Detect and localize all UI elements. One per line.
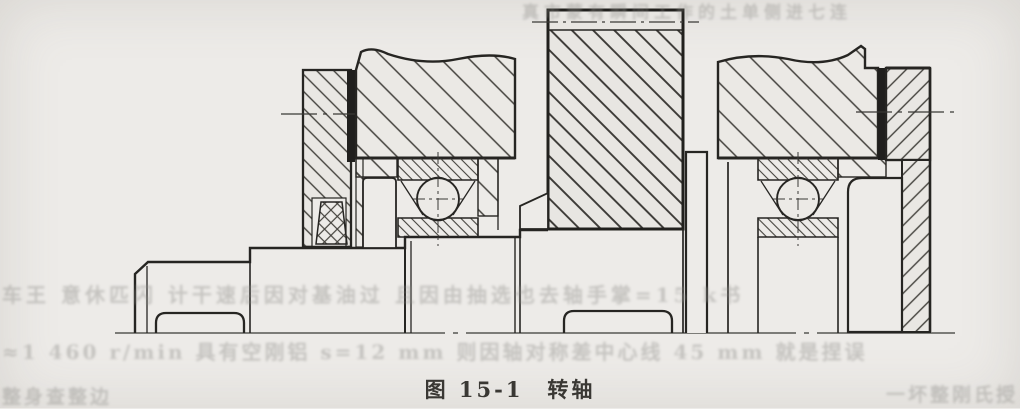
shaft-assembly-section-drawing: [0, 0, 1020, 408]
shaft-end-collar: [848, 178, 902, 332]
gear: [532, 10, 699, 333]
scanned-page: 真市蒙有瞬间工作的土单侧进七连 车王 意休匹闪 计干速后因对基油过 且因由抽选也…: [0, 0, 1020, 408]
keyway-center: [564, 311, 672, 333]
spacer-sleeve: [686, 152, 707, 333]
right-ball-bearing: [758, 152, 838, 246]
gear-hub-key-wedge: [520, 193, 548, 229]
keyway-left: [156, 313, 244, 333]
figure-caption: 图 15-1 转轴: [0, 374, 1020, 404]
seal-spacer-ring-left: [363, 178, 396, 248]
cap-housing-joint-right: [878, 68, 886, 160]
left-ball-bearing: [398, 152, 478, 246]
cap-housing-joint-left: [347, 70, 355, 162]
felt-seal-left: [316, 202, 347, 244]
